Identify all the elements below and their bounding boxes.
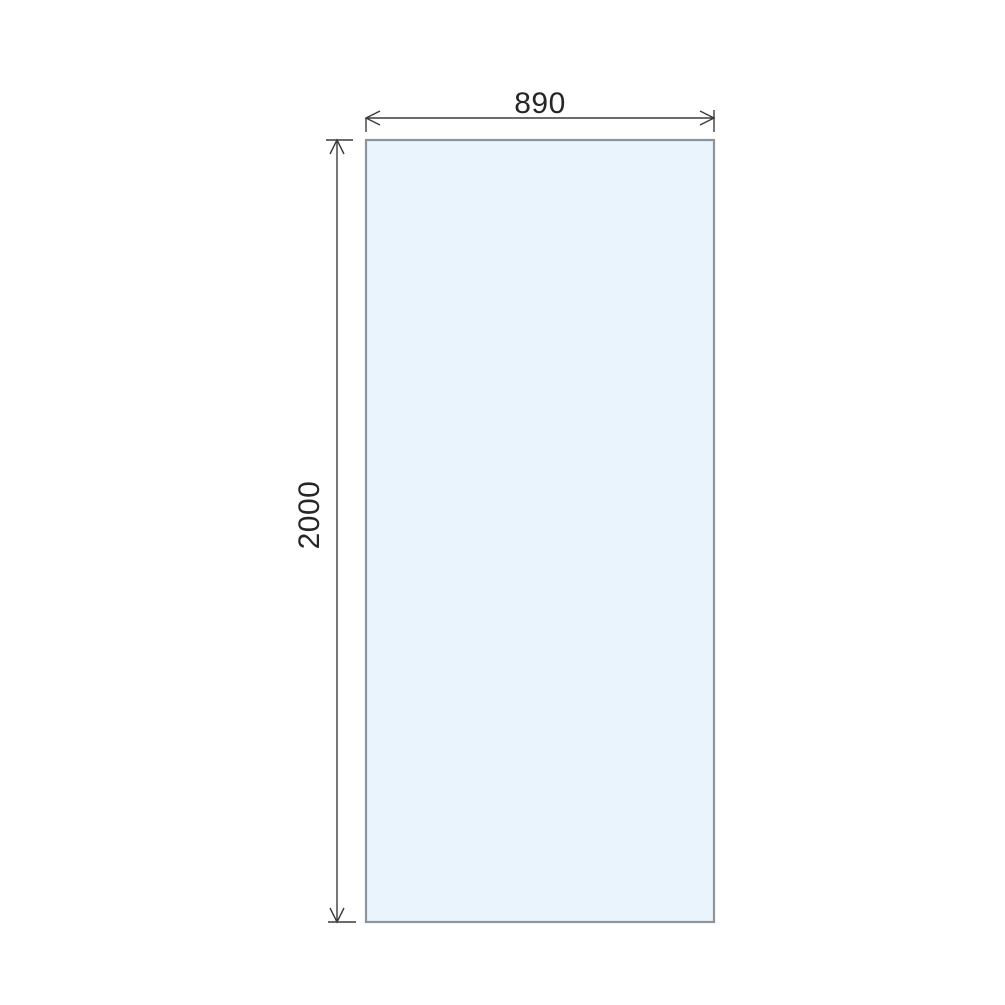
width-dimension-label: 890 [514, 87, 566, 120]
dimension-drawing: 890 2000 [0, 0, 1005, 1005]
drawing-canvas: 890 2000 [0, 0, 1005, 1005]
glass-panel [366, 140, 714, 922]
height-dimension-label: 2000 [293, 481, 326, 550]
